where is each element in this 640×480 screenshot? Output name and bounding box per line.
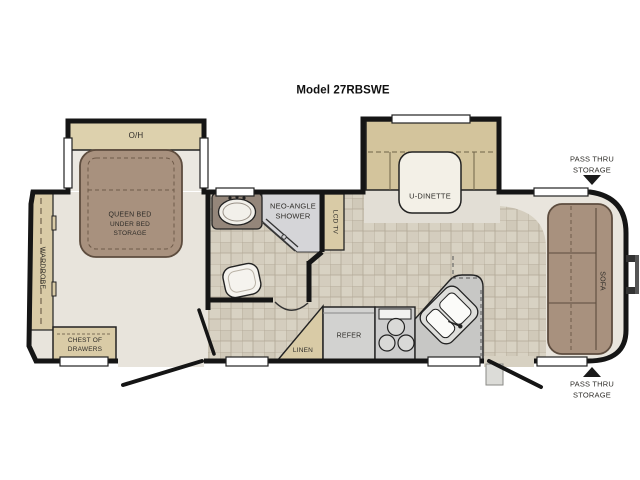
shower-knob: [282, 235, 286, 239]
refrigerator-label: REFER: [337, 333, 362, 340]
queen-bed-label2: UNDER BED: [110, 222, 150, 229]
stove-top: [379, 309, 411, 319]
window: [226, 357, 268, 366]
overhead-cabinet-label: O/H: [129, 132, 144, 140]
wardrobe-label: WARDROBE: [39, 247, 46, 290]
chest-label2: DRAWERS: [68, 347, 102, 354]
page-title: Model 27RBSWE: [296, 85, 389, 97]
dinette-label: U-DINETTE: [409, 192, 451, 200]
pass-thru-front-label2: STORAGE: [573, 166, 611, 174]
window: [428, 357, 480, 366]
pass-thru-rear-label2: STORAGE: [573, 391, 611, 399]
burner: [388, 319, 405, 336]
queen-bed: [80, 150, 182, 257]
wardrobe-notch: [52, 216, 56, 230]
shower-label2: SHOWER: [276, 212, 311, 220]
faucet-knob: [242, 196, 245, 199]
pass-thru-rear-label: PASS THRU: [570, 380, 614, 388]
slide-rail: [64, 138, 72, 188]
floorplan-drawing: [0, 0, 640, 480]
wardrobe-notch: [52, 282, 56, 296]
window: [60, 357, 108, 366]
chest-label: CHEST OF: [68, 338, 102, 345]
floorplan-page: Model 27RBSWE O/H QUEEN BED UNDER BED ST…: [0, 0, 640, 480]
faucet-knob: [228, 196, 231, 199]
arrow-up-icon: [583, 367, 601, 377]
window: [534, 188, 588, 196]
u-dinette-table: [399, 152, 461, 213]
burner: [398, 335, 414, 351]
window: [537, 357, 587, 366]
shower-label: NEO-ANGLE: [270, 202, 316, 210]
sofa-label: SOFA: [599, 271, 606, 290]
burner: [379, 335, 395, 351]
linen-label: LINEN: [293, 348, 313, 355]
tv-cabinet-label: LCD TV: [331, 210, 338, 234]
rear-bumper-bar: [635, 255, 639, 294]
arrow-down-icon: [583, 175, 601, 185]
queen-bed-label3: STORAGE: [113, 231, 146, 238]
window: [216, 188, 254, 196]
slide-rail: [200, 138, 208, 188]
slide-rail: [392, 115, 470, 123]
pass-thru-front-label: PASS THRU: [570, 155, 614, 163]
queen-bed-label: QUEEN BED: [108, 212, 151, 219]
